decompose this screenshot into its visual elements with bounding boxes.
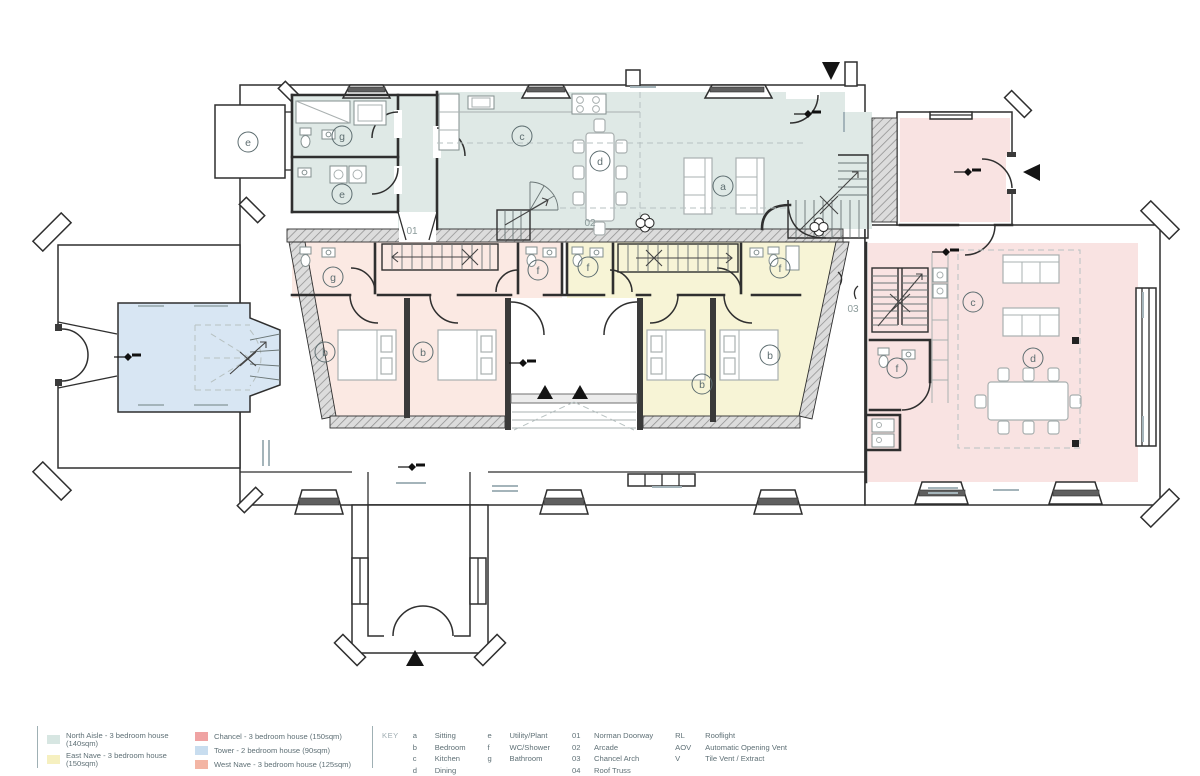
key-code: g bbox=[488, 755, 510, 763]
key-label: Bathroom bbox=[510, 755, 543, 763]
legend-item: Tower - 2 bedroom house (90sqm) bbox=[195, 746, 363, 755]
label-arcade: 02 bbox=[584, 218, 596, 229]
svg-text:f: f bbox=[896, 363, 899, 375]
key-label: Tile Vent / Extract bbox=[705, 755, 764, 763]
svg-text:b: b bbox=[699, 379, 705, 391]
svg-text:e: e bbox=[339, 189, 345, 201]
legend-label: North Aisle - 3 bedroom house (140sqm) bbox=[66, 732, 195, 747]
label-norman-doorway: 01 bbox=[406, 226, 418, 237]
south-porch bbox=[334, 505, 505, 666]
entrance-arrow-north bbox=[822, 62, 840, 80]
key-code: V bbox=[675, 755, 705, 763]
key-code: b bbox=[413, 744, 435, 752]
key-code: RL bbox=[675, 732, 705, 740]
svg-text:b: b bbox=[420, 347, 426, 359]
legend-divider bbox=[37, 726, 38, 768]
svg-text:e: e bbox=[245, 137, 251, 149]
key-code: 02 bbox=[572, 744, 594, 752]
svg-text:a: a bbox=[720, 181, 726, 193]
legend-label: Chancel - 3 bedroom house (150sqm) bbox=[214, 733, 342, 741]
key-label: Rooflight bbox=[705, 732, 735, 740]
key-label: Bedroom bbox=[435, 744, 466, 752]
legend-item: Chancel - 3 bedroom house (150sqm) bbox=[195, 732, 363, 741]
legend-group-1: North Aisle - 3 bedroom house (140sqm) E… bbox=[47, 726, 195, 767]
key-code: 04 bbox=[572, 767, 594, 775]
key-label: Chancel Arch bbox=[594, 755, 639, 763]
key-column-services: eUtility/Plant fWC/Shower gBathroom bbox=[488, 732, 551, 774]
svg-text:f: f bbox=[537, 265, 540, 277]
key-block: KEY aSitting bBedroom cKitchen dDining e… bbox=[382, 726, 809, 774]
legend-swatch-chancel bbox=[195, 732, 208, 741]
key-code: a bbox=[413, 732, 435, 740]
key-label: Roof Truss bbox=[594, 767, 631, 775]
key-label: Dining bbox=[435, 767, 457, 775]
key-label: Arcade bbox=[594, 744, 618, 752]
legend-item: North Aisle - 3 bedroom house (140sqm) bbox=[47, 732, 195, 747]
legend-swatch-west-nave bbox=[195, 760, 208, 769]
key-label: WC/Shower bbox=[510, 744, 551, 752]
chancel-entry-zone bbox=[900, 118, 1010, 222]
legend-item: West Nave - 3 bedroom house (125sqm) bbox=[195, 760, 363, 769]
svg-text:b: b bbox=[767, 350, 773, 362]
legend-label: West Nave - 3 bedroom house (125sqm) bbox=[214, 761, 351, 769]
svg-text:f: f bbox=[779, 263, 782, 275]
key-code: e bbox=[488, 732, 510, 740]
entrance-arrow-east bbox=[1023, 164, 1040, 181]
svg-text:d: d bbox=[597, 156, 603, 168]
floor-plan: e g e c d a g f b b f f b b c d f 01 02 … bbox=[0, 0, 1200, 712]
key-code: f bbox=[488, 744, 510, 752]
key-label: Kitchen bbox=[435, 755, 460, 763]
legend-swatch-east-nave bbox=[47, 755, 60, 764]
svg-text:g: g bbox=[330, 272, 336, 284]
legend: North Aisle - 3 bedroom house (140sqm) E… bbox=[28, 726, 809, 774]
key-code: 01 bbox=[572, 732, 594, 740]
legend-group-2: Chancel - 3 bedroom house (150sqm) Tower… bbox=[195, 726, 363, 769]
key-code: AOV bbox=[675, 744, 705, 752]
label-chancel-arch: 03 bbox=[847, 304, 859, 315]
svg-text:c: c bbox=[970, 297, 975, 309]
key-label: Sitting bbox=[435, 732, 456, 740]
svg-text:g: g bbox=[339, 131, 345, 143]
key-label: Norman Doorway bbox=[594, 732, 653, 740]
key-column-features: 01Norman Doorway 02Arcade 03Chancel Arch… bbox=[572, 732, 653, 774]
key-code: d bbox=[413, 767, 435, 775]
legend-swatch-tower bbox=[195, 746, 208, 755]
svg-text:b: b bbox=[322, 347, 328, 359]
key-label: Automatic Opening Vent bbox=[705, 744, 787, 752]
legend-divider bbox=[372, 726, 373, 768]
legend-item: East Nave - 3 bedroom house (150sqm) bbox=[47, 752, 195, 767]
legend-swatch-north-aisle bbox=[47, 735, 60, 744]
key-label: Utility/Plant bbox=[510, 732, 548, 740]
key-column-vents: RLRooflight AOVAutomatic Opening Vent VT… bbox=[675, 732, 787, 774]
svg-text:f: f bbox=[587, 262, 590, 274]
key-code: 03 bbox=[572, 755, 594, 763]
east-window bbox=[1136, 288, 1156, 446]
svg-text:c: c bbox=[519, 131, 524, 143]
svg-text:d: d bbox=[1030, 353, 1036, 365]
key-code: c bbox=[413, 755, 435, 763]
legend-label: Tower - 2 bedroom house (90sqm) bbox=[214, 747, 330, 755]
key-title: KEY bbox=[382, 732, 399, 774]
key-column-rooms: aSitting bBedroom cKitchen dDining bbox=[413, 732, 466, 774]
legend-label: East Nave - 3 bedroom house (150sqm) bbox=[66, 752, 195, 767]
